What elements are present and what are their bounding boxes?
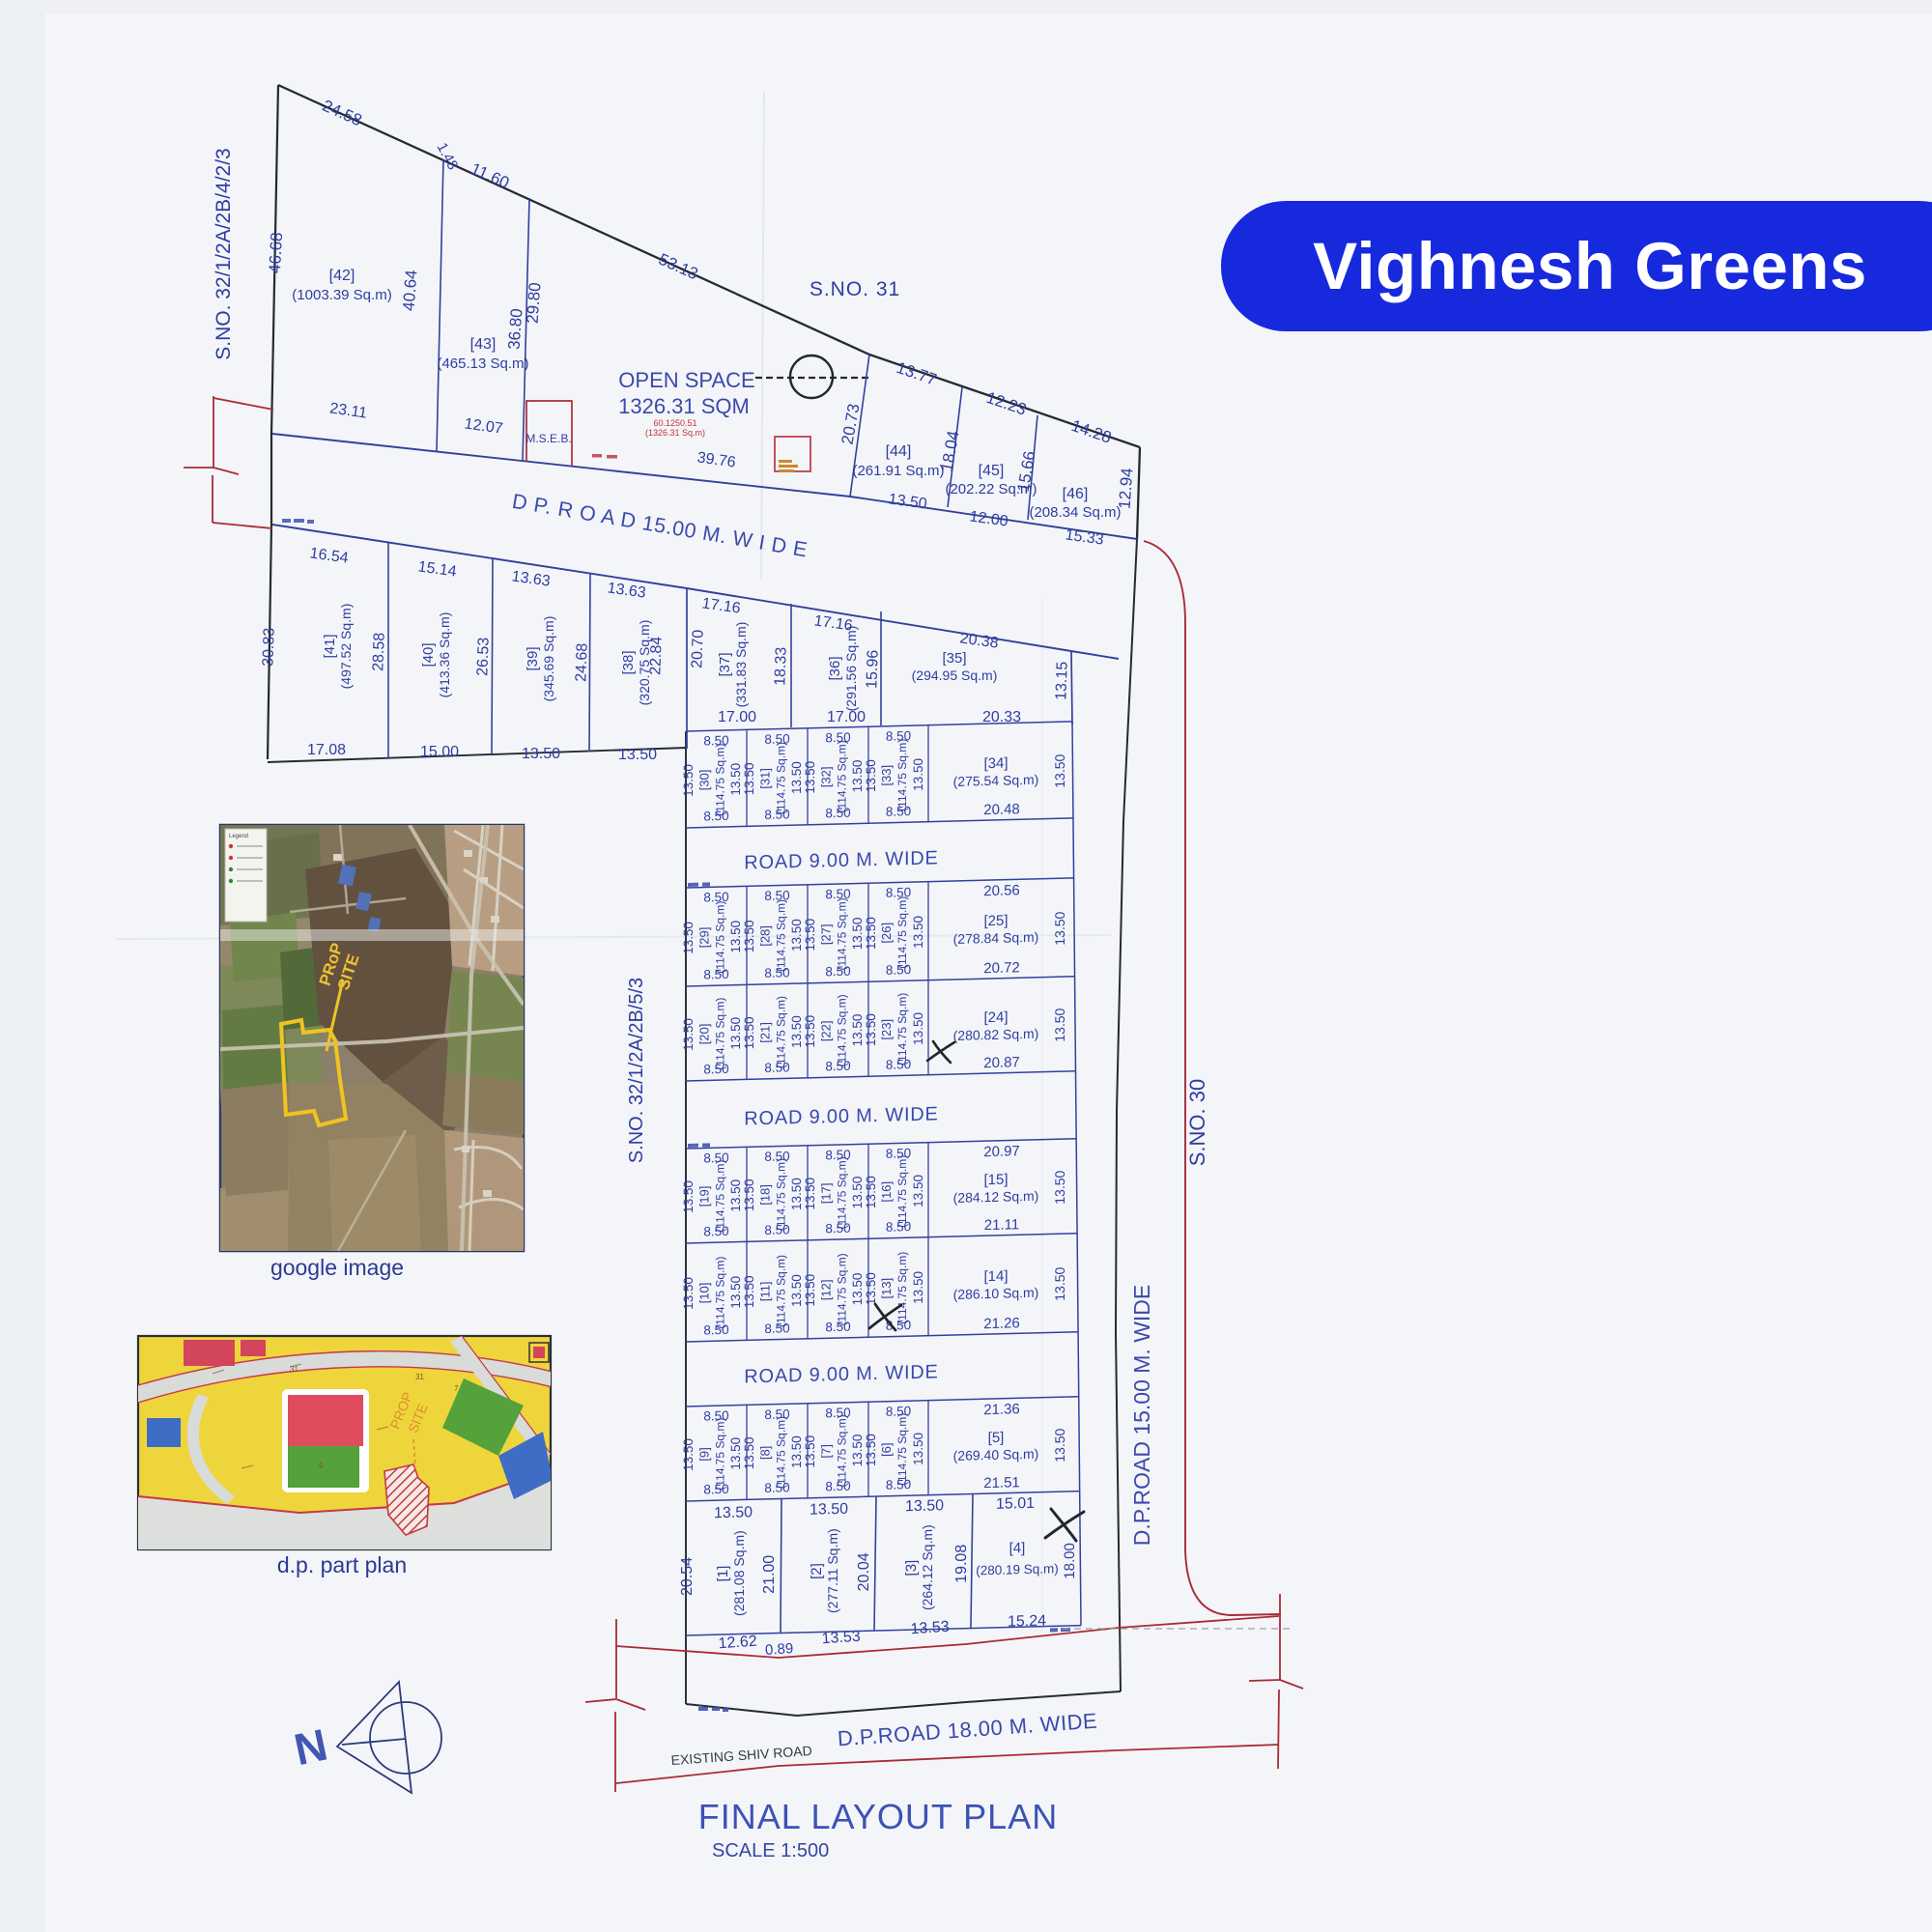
svg-text:13.50: 13.50 [803,1274,817,1307]
svg-text:13.50: 13.50 [618,747,657,763]
svg-text:S.NO. 31: S.NO. 31 [810,278,900,300]
svg-text:26.53: 26.53 [474,637,492,676]
svg-text:24.68: 24.68 [573,642,590,682]
svg-text:[6]: [6] [879,1442,894,1457]
svg-text:[40]: [40] [420,642,437,667]
svg-text:13.50: 13.50 [864,1013,878,1046]
svg-text:19.08: 19.08 [953,1544,970,1583]
svg-text:13.50: 13.50 [728,1276,743,1309]
svg-text:13.50: 13.50 [728,1179,743,1212]
svg-text:(114.75 Sq.m): (114.75 Sq.m) [895,993,909,1065]
svg-text:[35]: [35] [942,650,966,667]
svg-text:13.50: 13.50 [864,1434,878,1466]
svg-text:(114.75 Sq.m): (114.75 Sq.m) [836,1156,849,1229]
svg-text:13.50: 13.50 [810,1501,848,1519]
svg-text:13.50: 13.50 [864,917,878,950]
svg-text:13.50: 13.50 [1052,1428,1067,1463]
svg-text:17.00: 17.00 [827,709,866,725]
svg-text:15.96: 15.96 [864,649,881,689]
svg-text:13.50: 13.50 [911,916,925,949]
svg-text:(1326.31 Sq.m): (1326.31 Sq.m) [645,428,705,438]
svg-text:20.97: 20.97 [983,1143,1020,1160]
svg-text:(291.56 Sq.m): (291.56 Sq.m) [843,626,859,712]
svg-text:13.50: 13.50 [728,921,743,953]
svg-text:(114.75 Sq.m): (114.75 Sq.m) [714,1159,727,1232]
svg-text:(465.13 Sq.m): (465.13 Sq.m) [437,355,528,372]
svg-text:21.11: 21.11 [984,1216,1019,1234]
svg-text:(114.75 Sq.m): (114.75 Sq.m) [836,1253,849,1325]
svg-text:13.50: 13.50 [905,1497,944,1515]
svg-text:[33]: [33] [879,765,894,786]
svg-text:[14]: [14] [983,1268,1008,1286]
svg-text:Vighnesh Greens: Vighnesh Greens [1313,229,1867,303]
svg-text:21.36: 21.36 [983,1401,1020,1418]
svg-text:13.50: 13.50 [789,1274,804,1307]
svg-text:13.50: 13.50 [864,759,878,792]
svg-text:13.50: 13.50 [803,919,817,952]
svg-text:13.50: 13.50 [911,758,925,791]
svg-text:22.84: 22.84 [647,636,665,675]
svg-text:D.P.ROAD 15.00 M. WIDE: D.P.ROAD 15.00 M. WIDE [1129,1285,1154,1547]
svg-text:13.50: 13.50 [803,1015,817,1048]
svg-text:[20]: [20] [697,1023,712,1044]
svg-text:[19]: [19] [697,1185,712,1207]
svg-text:(281.08 Sq.m): (281.08 Sq.m) [731,1530,747,1616]
svg-text:13.50: 13.50 [1052,753,1067,788]
svg-text:18.33: 18.33 [772,646,789,686]
svg-text:[7]: [7] [819,1444,834,1459]
svg-text:13.53: 13.53 [910,1619,950,1638]
svg-text:28.58: 28.58 [370,632,387,671]
svg-text:[28]: [28] [758,925,773,947]
svg-text:7: 7 [454,1384,459,1393]
svg-text:13.50: 13.50 [850,1272,865,1305]
svg-text:(114.75 Sq.m): (114.75 Sq.m) [775,1158,788,1231]
svg-text:1326.31 SQM: 1326.31 SQM [618,394,750,418]
svg-text:[9]: [9] [697,1447,712,1462]
svg-text:[45]: [45] [979,463,1005,479]
svg-text:M.S.E.B.: M.S.E.B. [526,432,571,445]
svg-text:[44]: [44] [886,443,912,460]
svg-text:13.50: 13.50 [864,1272,878,1305]
svg-text:21.51: 21.51 [983,1474,1020,1492]
svg-text:15.24: 15.24 [1008,1613,1046,1631]
svg-text:13.50: 13.50 [1052,1266,1067,1301]
svg-text:[2]: [2] [809,1563,825,1579]
svg-text:13.50: 13.50 [850,1434,865,1466]
svg-text:(114.75 Sq.m): (114.75 Sq.m) [714,900,727,973]
svg-text:(114.75 Sq.m): (114.75 Sq.m) [895,896,909,969]
svg-text:20.04: 20.04 [856,1552,872,1592]
svg-text:[38]: [38] [620,650,637,674]
svg-text:13.50: 13.50 [911,1175,925,1207]
svg-text:13.50: 13.50 [742,1179,756,1211]
svg-text:(275.54 Sq.m): (275.54 Sq.m) [953,772,1039,789]
svg-text:13.50: 13.50 [1052,911,1067,946]
svg-text:[12]: [12] [819,1279,834,1300]
svg-text:[24]: [24] [983,1009,1008,1027]
svg-text:0.89: 0.89 [765,1640,794,1659]
svg-text:(261.91 Sq.m): (261.91 Sq.m) [852,463,944,479]
svg-text:29.80: 29.80 [524,282,545,325]
svg-text:12.94: 12.94 [1116,468,1137,510]
svg-text:[15]: [15] [983,1172,1008,1189]
svg-text:13.50: 13.50 [789,1435,804,1468]
svg-text:9: 9 [319,1462,324,1470]
svg-text:(280.19 Sq.m): (280.19 Sq.m) [976,1561,1059,1577]
svg-text:(294.95 Sq.m): (294.95 Sq.m) [912,668,998,683]
svg-text:[29]: [29] [697,926,712,948]
svg-text:(114.75 Sq.m): (114.75 Sq.m) [895,739,909,811]
svg-text:13.50: 13.50 [681,764,696,797]
svg-text:20.72: 20.72 [983,959,1020,977]
svg-text:13.50: 13.50 [1052,1008,1067,1042]
svg-text:31: 31 [415,1373,424,1381]
svg-text:SCALE 1:500: SCALE 1:500 [712,1840,829,1861]
svg-text:(497.52 Sq.m): (497.52 Sq.m) [338,604,354,690]
svg-text:(114.75 Sq.m): (114.75 Sq.m) [714,1417,727,1490]
svg-text:12.62: 12.62 [718,1634,757,1653]
svg-text:(280.82 Sq.m): (280.82 Sq.m) [953,1026,1039,1043]
svg-text:[17]: [17] [819,1182,834,1204]
svg-text:13.50: 13.50 [911,1012,925,1045]
svg-text:13.50: 13.50 [742,762,756,795]
svg-text:13.50: 13.50 [911,1433,925,1465]
svg-text:13.50: 13.50 [789,1015,804,1048]
svg-text:Legend: Legend [229,834,248,839]
svg-text:(114.75 Sq.m): (114.75 Sq.m) [836,740,849,812]
svg-text:15.00: 15.00 [420,744,459,760]
svg-text:[8]: [8] [758,1446,773,1461]
svg-text:OPEN SPACE: OPEN SPACE [618,368,754,392]
svg-text:20.56: 20.56 [983,882,1020,899]
svg-text:(114.75 Sq.m): (114.75 Sq.m) [714,743,727,815]
svg-text:13.50: 13.50 [742,1016,756,1049]
svg-text:(114.75 Sq.m): (114.75 Sq.m) [775,899,788,972]
svg-text:[23]: [23] [879,1019,894,1040]
svg-text:(284.12 Sq.m): (284.12 Sq.m) [953,1188,1039,1206]
svg-text:(114.75 Sq.m): (114.75 Sq.m) [775,996,788,1068]
svg-text:(114.75 Sq.m): (114.75 Sq.m) [775,1416,788,1489]
svg-text:(1003.39 Sq.m): (1003.39 Sq.m) [292,287,391,303]
svg-text:S.NO. 32/1/2A/2B/4/2/3: S.NO. 32/1/2A/2B/4/2/3 [213,148,235,359]
svg-text:13.50: 13.50 [803,761,817,794]
svg-text:13.50: 13.50 [728,1437,743,1470]
svg-text:(345.69 Sq.m): (345.69 Sq.m) [541,616,556,702]
svg-text:d.p. part plan: d.p. part plan [277,1552,407,1577]
svg-text:(286.10 Sq.m): (286.10 Sq.m) [953,1285,1039,1302]
svg-text:21.00: 21.00 [761,1554,778,1594]
svg-text:31: 31 [290,1365,298,1374]
svg-text:S.NO. 30: S.NO. 30 [1185,1079,1209,1166]
svg-text:13.50: 13.50 [728,763,743,796]
svg-text:13.50: 13.50 [522,746,560,762]
svg-text:13.50: 13.50 [742,1436,756,1469]
svg-text:(278.84 Sq.m): (278.84 Sq.m) [953,929,1039,947]
svg-text:13.50: 13.50 [714,1504,753,1521]
svg-text:google image: google image [270,1255,404,1280]
svg-text:[34]: [34] [983,755,1008,773]
svg-text:13.53: 13.53 [821,1629,861,1648]
svg-text:(413.36 Sq.m): (413.36 Sq.m) [437,612,452,698]
svg-text:13.50: 13.50 [803,1435,817,1468]
svg-text:(114.75 Sq.m): (114.75 Sq.m) [836,1414,849,1487]
svg-text:(114.75 Sq.m): (114.75 Sq.m) [836,897,849,970]
svg-text:[41]: [41] [322,634,338,658]
svg-text:17.00: 17.00 [718,709,756,725]
svg-text:(114.75 Sq.m): (114.75 Sq.m) [775,742,788,814]
svg-text:[18]: [18] [758,1184,773,1206]
svg-text:[11]: [11] [758,1281,773,1301]
svg-text:13.15: 13.15 [1053,661,1070,700]
svg-text:13.50: 13.50 [850,917,865,950]
svg-text:[31]: [31] [758,768,773,789]
svg-text:(114.75 Sq.m): (114.75 Sq.m) [895,1252,909,1324]
svg-text:(269.40 Sq.m): (269.40 Sq.m) [953,1446,1039,1463]
svg-text:13.50: 13.50 [681,1277,696,1310]
svg-text:18.00: 18.00 [1062,1543,1078,1579]
svg-text:[25]: [25] [983,913,1008,930]
svg-text:[46]: [46] [1063,486,1089,502]
svg-text:13.50: 13.50 [789,919,804,952]
svg-text:(114.75 Sq.m): (114.75 Sq.m) [775,1255,788,1327]
svg-text:[21]: [21] [758,1022,773,1043]
svg-text:21.26: 21.26 [983,1315,1020,1332]
svg-text:[22]: [22] [819,1020,834,1041]
svg-text:(264.12 Sq.m): (264.12 Sq.m) [920,1524,935,1610]
svg-text:40.64: 40.64 [400,270,421,312]
svg-text:13.50: 13.50 [681,1180,696,1213]
svg-text:30.83: 30.83 [260,627,277,667]
svg-text:(331.83 Sq.m): (331.83 Sq.m) [733,622,749,708]
svg-text:17.08: 17.08 [307,742,346,758]
svg-text:(114.75 Sq.m): (114.75 Sq.m) [836,994,849,1066]
svg-text:20.48: 20.48 [983,801,1020,818]
svg-text:13.50: 13.50 [850,1176,865,1208]
svg-text:13.50: 13.50 [864,1176,878,1208]
svg-text:60.1250.51: 60.1250.51 [653,418,696,428]
svg-text:13.50: 13.50 [742,920,756,952]
svg-text:13.50: 13.50 [850,1013,865,1046]
svg-text:[30]: [30] [697,769,712,790]
svg-text:13.50: 13.50 [1052,1170,1067,1205]
svg-text:(114.75 Sq.m): (114.75 Sq.m) [895,1155,909,1228]
svg-text:15.01: 15.01 [996,1495,1035,1513]
svg-text:20.87: 20.87 [983,1054,1020,1071]
svg-text:[26]: [26] [879,923,894,944]
svg-text:13.50: 13.50 [681,922,696,954]
svg-text:FINAL LAYOUT PLAN: FINAL LAYOUT PLAN [698,1797,1058,1836]
svg-text:[16]: [16] [879,1181,894,1203]
svg-text:13.50: 13.50 [803,1178,817,1210]
svg-text:[1]: [1] [715,1565,731,1581]
svg-text:36.80: 36.80 [505,308,526,351]
svg-text:20.54: 20.54 [679,1557,696,1597]
svg-text:13.50: 13.50 [850,759,865,792]
svg-text:13.50: 13.50 [742,1275,756,1308]
svg-text:[27]: [27] [819,923,834,945]
svg-text:(208.34 Sq.m): (208.34 Sq.m) [1029,504,1121,521]
svg-text:13.50: 13.50 [789,1178,804,1210]
svg-text:13.50: 13.50 [911,1271,925,1304]
svg-text:[39]: [39] [525,646,541,670]
svg-text:46.68: 46.68 [266,232,286,273]
svg-text:[36]: [36] [827,656,843,680]
svg-text:(114.75 Sq.m): (114.75 Sq.m) [895,1413,909,1486]
svg-text:[3]: [3] [903,1560,920,1577]
svg-text:13.50: 13.50 [789,761,804,794]
svg-text:S.NO. 32/1/2A/2B/5/3: S.NO. 32/1/2A/2B/5/3 [626,978,647,1163]
svg-text:20.70: 20.70 [689,629,706,668]
svg-text:13.50: 13.50 [681,1438,696,1471]
svg-text:[43]: [43] [470,336,497,353]
svg-text:[10]: [10] [697,1282,712,1303]
svg-text:[13]: [13] [879,1278,894,1299]
svg-text:(277.11 Sq.m): (277.11 Sq.m) [825,1528,840,1613]
svg-text:[37]: [37] [717,652,733,676]
svg-text:13.50: 13.50 [681,1018,696,1051]
svg-text:[5]: [5] [988,1430,1005,1446]
svg-text:[4]: [4] [1009,1540,1026,1556]
svg-text:13.50: 13.50 [728,1017,743,1050]
svg-text:(114.75 Sq.m): (114.75 Sq.m) [714,997,727,1069]
svg-text:[42]: [42] [329,268,355,284]
svg-text:[32]: [32] [819,766,834,787]
svg-text:(114.75 Sq.m): (114.75 Sq.m) [714,1256,727,1328]
